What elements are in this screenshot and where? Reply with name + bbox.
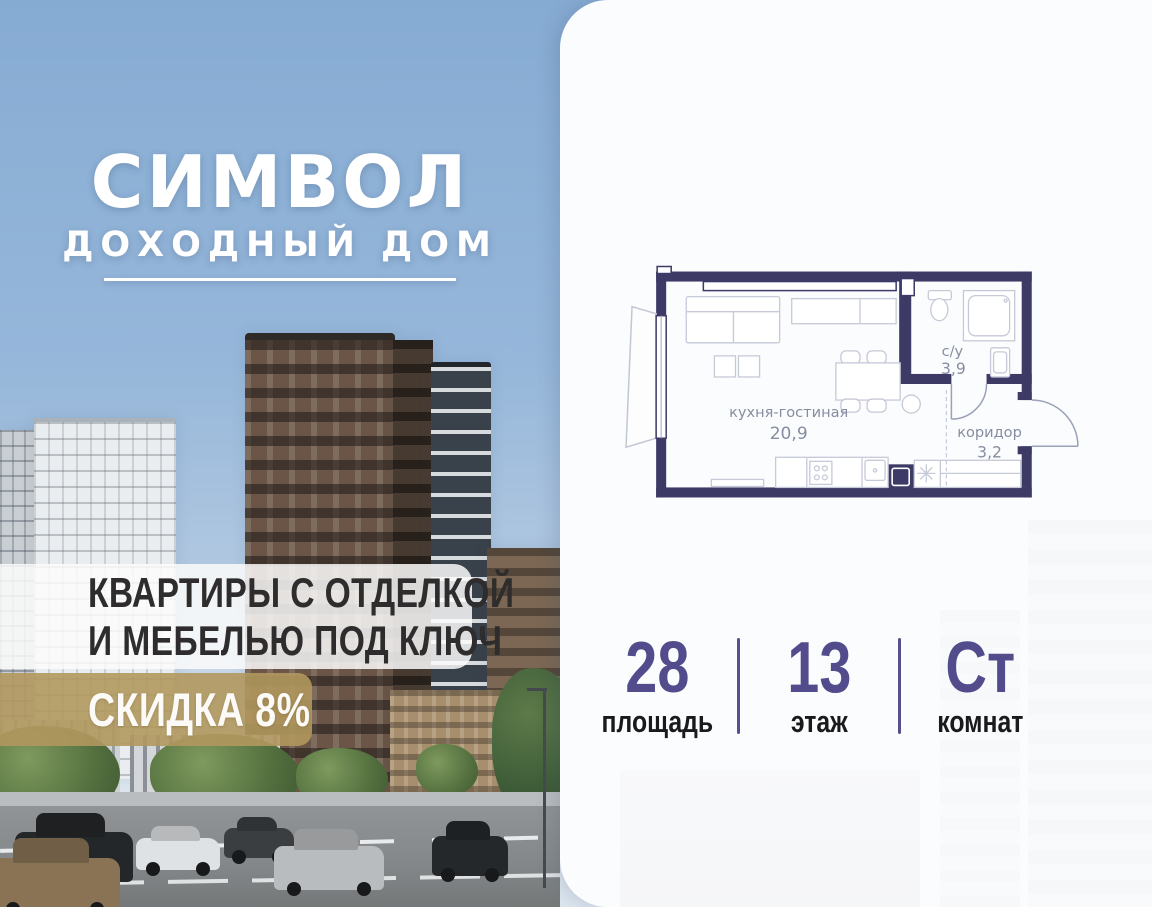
streetlight-pole xyxy=(543,688,546,888)
brand-subtitle: ДОХОДНЫЙ ДОМ xyxy=(0,228,560,263)
stat-rooms-label: комнат xyxy=(917,706,1044,737)
car-silver-sedan xyxy=(274,846,384,890)
brand-title: СИМВОЛ xyxy=(0,146,560,218)
stat-rooms-value: Ст xyxy=(917,634,1044,702)
stat-floor-label: этаж xyxy=(756,706,883,737)
furniture xyxy=(686,291,1020,488)
discount-label: СКИДКА 8% xyxy=(88,682,310,737)
car-dark-right xyxy=(432,836,508,876)
stats-row: 28 площадь 13 этаж Ст комнат xyxy=(578,634,1060,737)
discount-badge: СКИДКА 8% xyxy=(0,673,312,746)
stat-area-value: 28 xyxy=(594,634,721,702)
brand-logo: СИМВОЛ ДОХОДНЫЙ ДОМ xyxy=(0,146,560,281)
streetlight-arm xyxy=(527,688,547,691)
balcony xyxy=(626,307,656,448)
offer-line-1: КВАРТИРЫ С ОТДЕЛКОЙ xyxy=(88,569,395,616)
shaft xyxy=(901,279,914,296)
card-watermark xyxy=(620,770,920,907)
stat-area: 28 площадь xyxy=(578,634,737,737)
room-hall-label: коридор xyxy=(957,424,1022,441)
offer-badge: КВАРТИРЫ С ОТДЕЛКОЙ И МЕБЕЛЬЮ ПОД КЛЮЧ xyxy=(0,564,472,669)
poster: СИМВОЛ ДОХОДНЫЙ ДОМ КВАРТИРЫ С ОТДЕЛКОЙ … xyxy=(0,0,1152,907)
tree xyxy=(416,744,478,796)
car-bronze-parked xyxy=(0,858,120,907)
car-white-sedan xyxy=(136,838,220,870)
room-kitchen-label: кухня-гостиная xyxy=(729,404,848,421)
stat-area-label: площадь xyxy=(594,706,721,737)
brand-underline xyxy=(104,278,456,281)
stat-floor-value: 13 xyxy=(756,634,883,702)
room-hall-area: 3,2 xyxy=(977,443,1002,461)
wall-notch xyxy=(657,266,671,273)
offer-line-2: И МЕБЕЛЬЮ ПОД КЛЮЧ xyxy=(88,617,395,664)
room-bath-label: с/у xyxy=(942,343,964,360)
room-kitchen-area: 20,9 xyxy=(770,424,808,444)
room-bath-area: 3,9 xyxy=(941,360,966,378)
closet xyxy=(703,282,896,291)
info-card: кухня-гостиная 20,9 с/у 3,9 коридор 3,2 … xyxy=(560,0,1152,907)
stat-rooms: Ст комнат xyxy=(901,634,1060,737)
stat-floor: 13 этаж xyxy=(740,634,899,737)
floor-plan: кухня-гостиная 20,9 с/у 3,9 коридор 3,2 xyxy=(623,263,1095,510)
